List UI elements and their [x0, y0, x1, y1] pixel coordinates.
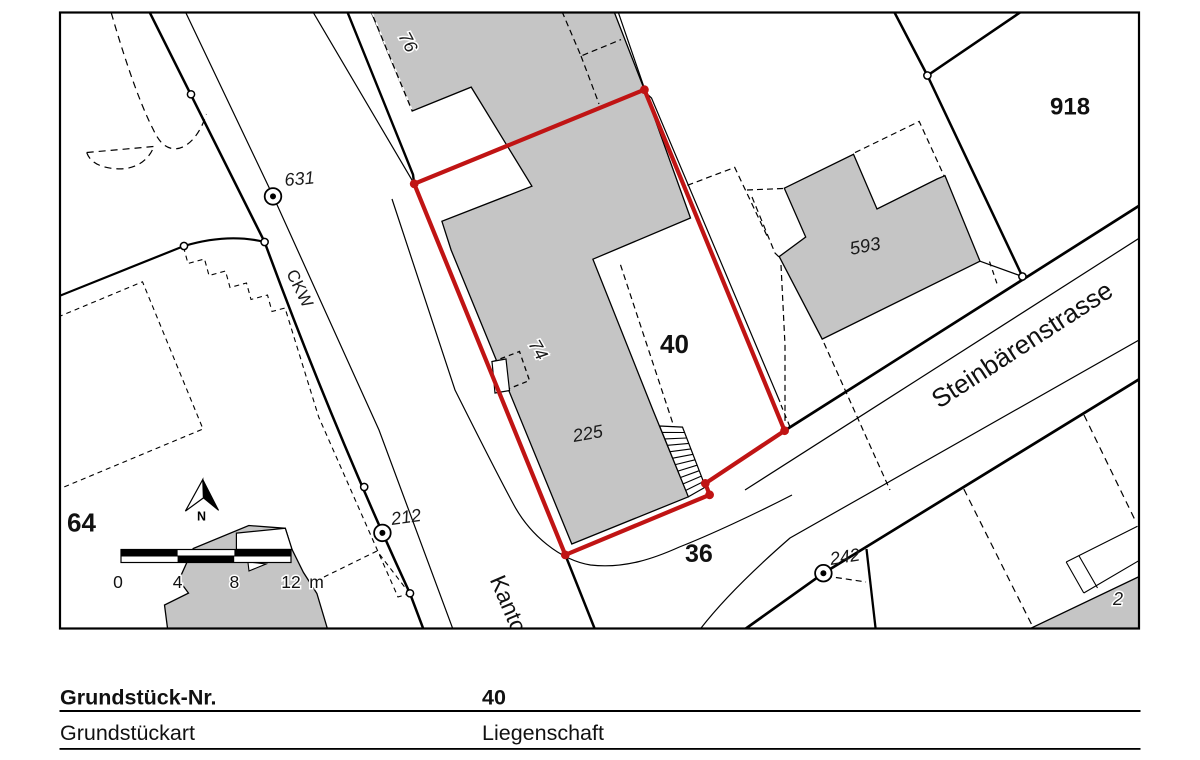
svg-text:Liegenschaft: Liegenschaft — [482, 721, 604, 745]
svg-text:40: 40 — [660, 329, 689, 359]
svg-text:8: 8 — [230, 572, 240, 592]
svg-text:Grundstückart: Grundstückart — [60, 721, 195, 745]
svg-text:4: 4 — [173, 572, 183, 592]
svg-text:0: 0 — [113, 572, 123, 592]
svg-text:212: 212 — [389, 505, 423, 529]
svg-text:36: 36 — [685, 540, 713, 568]
svg-text:2: 2 — [1112, 589, 1123, 609]
svg-text:64: 64 — [67, 508, 96, 538]
svg-text:40: 40 — [482, 686, 506, 710]
svg-text:Kanton: Kanton — [485, 571, 537, 648]
svg-text:242: 242 — [828, 544, 862, 569]
svg-text:N: N — [197, 509, 206, 523]
svg-text:918: 918 — [1050, 94, 1090, 121]
svg-text:Grundstück-Nr.: Grundstück-Nr. — [60, 686, 217, 710]
svg-text:631: 631 — [284, 167, 316, 190]
svg-text:m: m — [309, 572, 324, 592]
svg-text:12: 12 — [281, 572, 300, 592]
svg-text:Steinbärenstrasse: Steinbärenstrasse — [926, 275, 1118, 414]
